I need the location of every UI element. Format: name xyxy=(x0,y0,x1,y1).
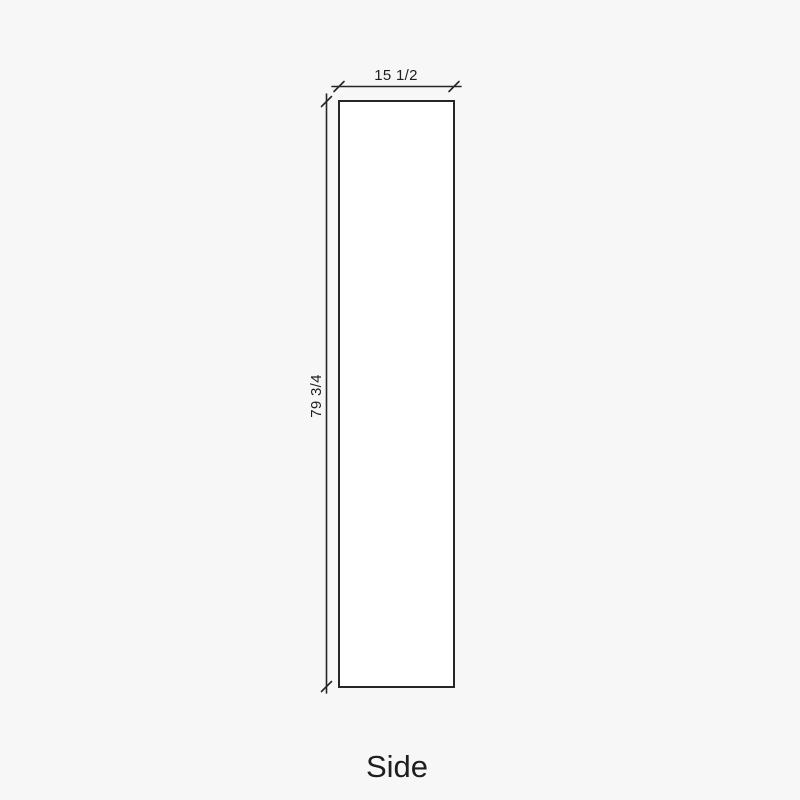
height-dimension-label: 79 3/4 xyxy=(308,374,325,418)
width-dimension: 15 1/2 xyxy=(332,67,461,92)
drawing-canvas: 15 1/2 79 3/4 Side xyxy=(0,0,800,800)
height-dimension: 79 3/4 xyxy=(308,94,332,693)
side-panel-drawing: 15 1/2 79 3/4 Side xyxy=(308,67,461,784)
width-dimension-label: 15 1/2 xyxy=(374,67,418,84)
side-panel-diagram: 15 1/2 79 3/4 Side xyxy=(0,0,800,800)
part-name-label: Side xyxy=(366,749,428,784)
panel-outline xyxy=(339,101,454,687)
